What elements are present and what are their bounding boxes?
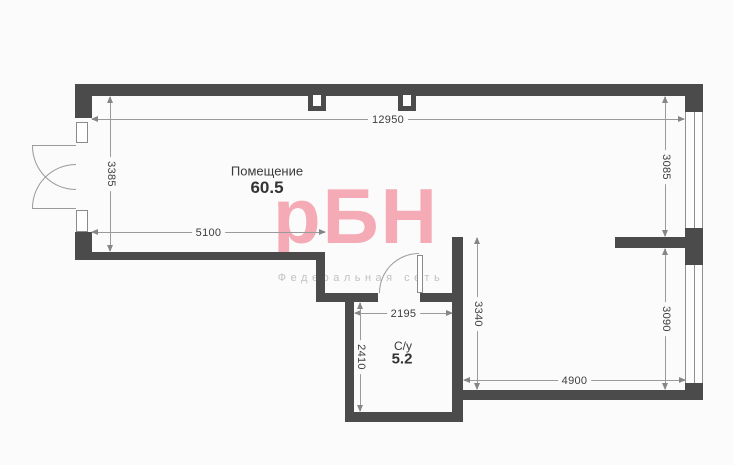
arrow-down-icon [107, 245, 113, 252]
wall-wc-bottom [345, 412, 463, 422]
arrow-left-icon [91, 229, 98, 235]
dimension-wc-height: 2410 [360, 303, 361, 411]
dimension-label-right-lower: 3090 [660, 302, 672, 336]
dimension-label-wc-width: 2195 [387, 308, 421, 320]
dimension-label-bottom-left: 5100 [192, 227, 226, 239]
window-glazing-line [694, 112, 695, 228]
dimension-wc-width: 2195 [355, 313, 452, 314]
vent-shaft-2 [398, 95, 416, 111]
wc-door-leaf [417, 255, 423, 293]
arrow-down-icon [474, 383, 480, 390]
dimension-bottom-left: 5100 [92, 232, 325, 233]
wall-wc-top-right [420, 293, 452, 302]
arrow-right-icon [446, 310, 453, 316]
door-leaf-lower [32, 208, 76, 209]
wall-right-middle-block [685, 228, 703, 265]
wall-wc-right [452, 237, 463, 422]
dimension-label-inner-right: 3340 [472, 297, 484, 331]
arrow-left-icon [463, 377, 470, 383]
wall-bottom-left [75, 252, 325, 260]
wall-stub-right [615, 237, 685, 248]
floor-plan: рБН Федеральная сеть 12950 5100 [0, 0, 733, 465]
dimension-right-upper: 3085 [665, 97, 666, 236]
room-area-label: 60.5 [250, 178, 283, 198]
arrow-down-icon [357, 405, 363, 412]
watermark-logo: рБН [273, 177, 439, 255]
arrow-right-icon [679, 377, 686, 383]
door-post-lower [76, 210, 88, 232]
arrow-right-icon [678, 116, 685, 122]
dimension-inner-right: 3340 [477, 238, 478, 389]
arrow-left-icon [91, 116, 98, 122]
wall-top [75, 84, 703, 96]
dimension-right-lower: 3090 [665, 249, 666, 389]
room-name-label: Помещение [231, 164, 303, 179]
arrow-up-icon [107, 96, 113, 103]
arrow-up-icon [662, 96, 668, 103]
arrow-up-icon [357, 302, 363, 309]
wall-left-upper-block [75, 84, 92, 118]
wall-wc-left [345, 293, 354, 422]
dimension-label-wc-height: 2410 [355, 340, 367, 374]
dimension-label-bottom-right: 4900 [558, 375, 592, 387]
dimension-bottom-right: 4900 [464, 380, 685, 381]
arrow-up-icon [474, 237, 480, 244]
window-glazing-line [694, 265, 695, 383]
vent-shaft-1 [308, 95, 326, 111]
wall-bottom-right [452, 390, 703, 400]
arrow-up-icon [662, 248, 668, 255]
arrow-right-icon [319, 229, 326, 235]
dimension-label-left: 3385 [105, 157, 117, 191]
window-right-lower [685, 265, 703, 383]
door-post-upper [76, 122, 88, 143]
arrow-down-icon [662, 383, 668, 390]
dimension-label-right-upper: 3085 [660, 150, 672, 184]
wc-area-label: 5.2 [392, 351, 413, 368]
dimension-left: 3385 [110, 97, 111, 251]
arrow-down-icon [662, 230, 668, 237]
window-right-upper [685, 112, 703, 228]
wall-right-corner-top [685, 84, 703, 112]
dimension-label-top: 12950 [368, 114, 408, 126]
dimension-top: 12950 [92, 119, 684, 120]
